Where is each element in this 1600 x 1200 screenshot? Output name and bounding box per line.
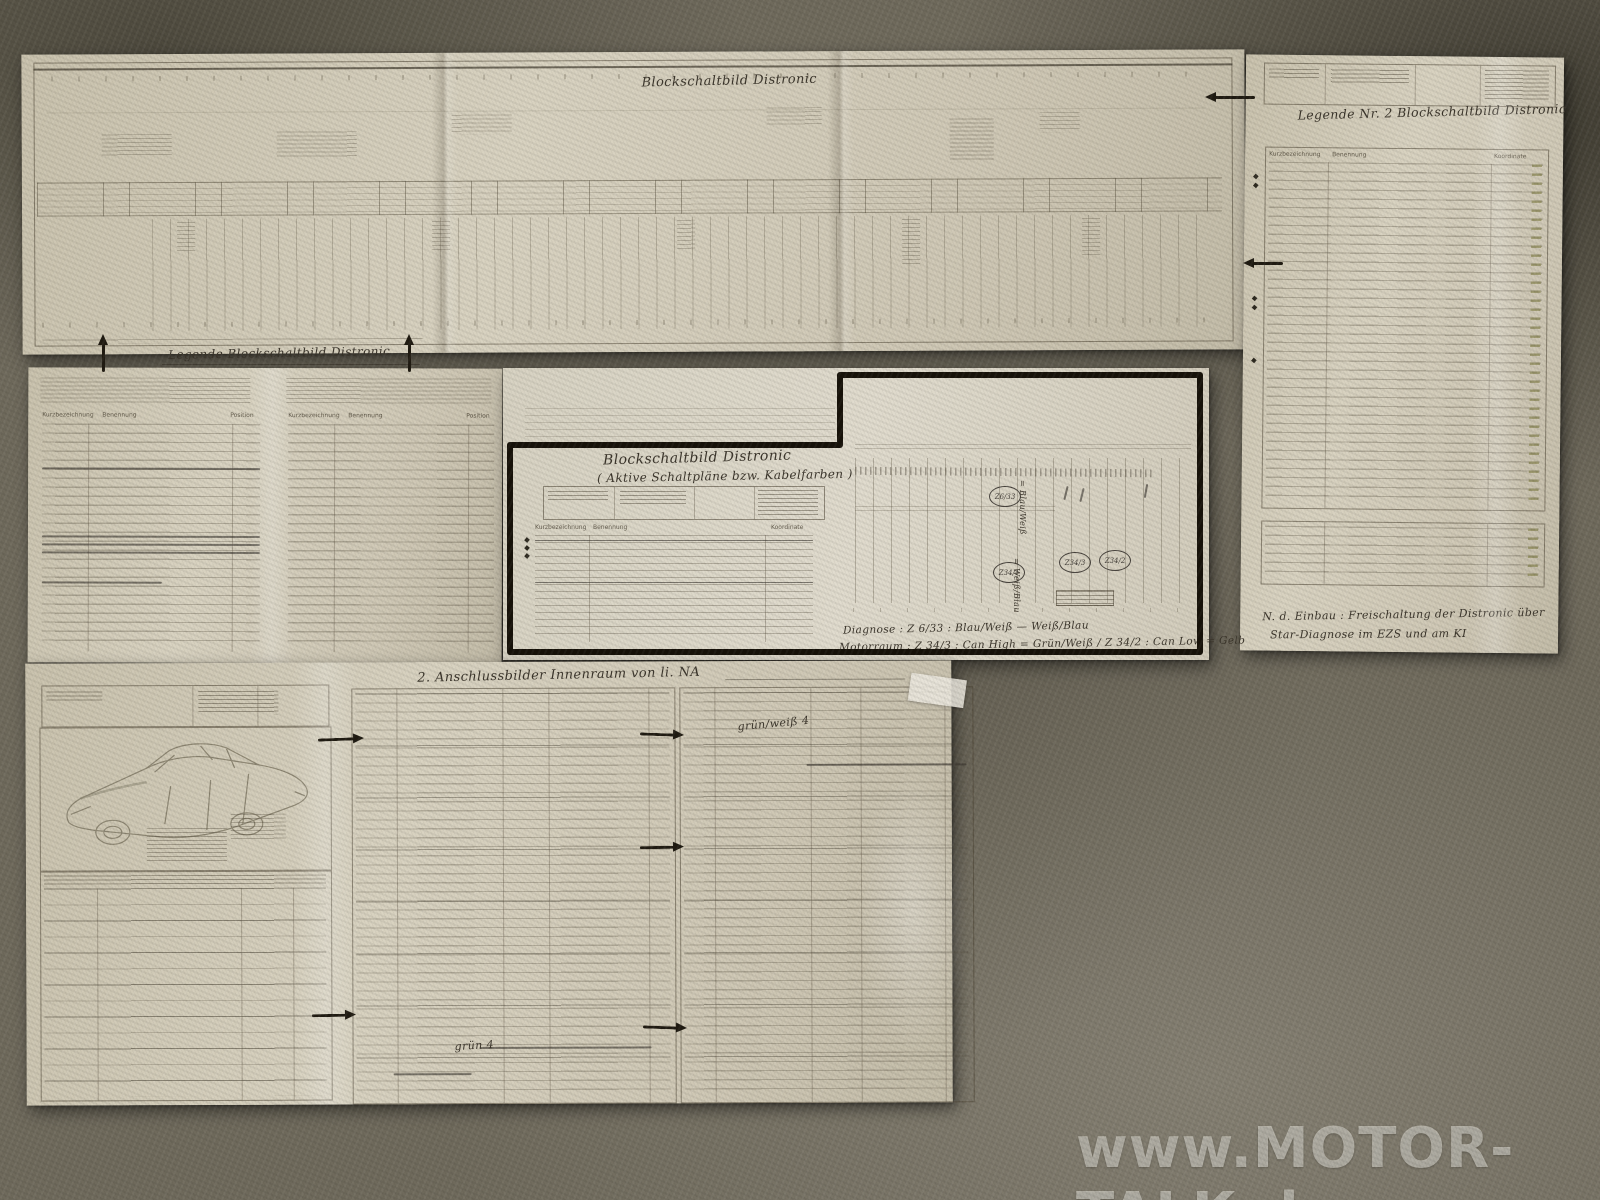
legend-rows	[1265, 162, 1543, 505]
header-smudge	[1485, 70, 1549, 103]
green-handwritten-checks	[1528, 528, 1539, 582]
header-smudge	[620, 491, 686, 505]
connector-box	[1056, 590, 1114, 606]
handwritten-circle-z633: Z6/33	[989, 486, 1021, 507]
sheet-right-legend: Legende Nr. 2 Blockschaltbild Distronic …	[1240, 54, 1564, 653]
handwritten-retrofit-note-2: Star-Diagnose im EZS und am KI	[1270, 627, 1467, 641]
col-header-kurzbezeichnung: Kurzbezeichnung	[1269, 151, 1320, 159]
pen-mark	[1252, 305, 1258, 311]
header-divider	[1325, 64, 1326, 104]
text-smudge	[950, 118, 994, 162]
col-divider	[589, 535, 590, 642]
connector-table-middle	[351, 687, 676, 1104]
pin-smudge	[677, 220, 695, 250]
legend-table-a: Kurzbezeichnung Benennung Position	[40, 411, 263, 652]
pen-mark	[1253, 183, 1259, 189]
pin-smudge	[177, 222, 195, 252]
watermark-text: www.MOTOR-TALK.de	[1076, 1116, 1600, 1200]
doc-header-box	[41, 685, 329, 728]
doc-meta-smudge	[40, 377, 250, 404]
handwritten-vertical-note-2: = Weiß/Blau	[1012, 558, 1021, 613]
text-smudge	[452, 115, 512, 135]
photo-of-wiring-diagrams: Blockschaltbild Distronic Legende Nr. 2 …	[0, 0, 1600, 1200]
pen-mark	[1251, 358, 1257, 364]
text-smudge	[102, 134, 172, 156]
table-rows	[683, 691, 968, 1096]
pen-mark	[524, 537, 530, 543]
handwritten-underline	[162, 364, 420, 365]
connector-table-right	[679, 686, 974, 1103]
sheet-framed-diagram: Blockschaltbild Distronic ( Aktive Schal…	[503, 368, 1209, 660]
handwritten-framed-title-1: Blockschaltbild Distronic	[603, 448, 792, 469]
legend-table-2	[1261, 521, 1546, 588]
col-header-kurzbezeichnung: Kurzbezeichnung	[288, 412, 339, 419]
pencil-highlight	[394, 1073, 472, 1075]
sheet-left-legend: Kurzbezeichnung Benennung Position Kurzb…	[28, 367, 503, 663]
schematic-block-row	[37, 177, 1222, 216]
handwritten-bottom-title: 2. Anschlussbilder Innenraum von li. NA	[417, 665, 700, 686]
hand-arrow-up-2	[408, 344, 411, 372]
pen-mark	[1252, 296, 1258, 302]
handwritten-trailing-line	[725, 679, 905, 681]
col-header-benennung: Benennung	[1332, 151, 1366, 158]
schematic-bottom-ticks	[853, 608, 1193, 612]
col-header-benennung: Benennung	[348, 412, 382, 419]
col-header-position: Position	[466, 413, 489, 420]
car-figure-box	[39, 727, 332, 872]
pin-smudge	[1082, 218, 1100, 258]
doc-meta-smudge	[286, 378, 491, 405]
doc-header-box	[543, 486, 825, 520]
sheet-bottom-connectors: 2. Anschlussbilder Innenraum von li. NA	[25, 660, 953, 1105]
handwritten-framed-title-2: ( Aktive Schaltpläne bzw. Kabelfarben )	[597, 467, 853, 485]
pin-smudge	[432, 221, 450, 251]
pencil-highlight	[42, 581, 162, 583]
header-smudge	[46, 691, 102, 701]
col-divider	[765, 535, 766, 642]
header-divider	[754, 487, 755, 519]
pen-mark	[1253, 174, 1259, 180]
hand-arrow-up-1	[102, 344, 105, 372]
header-divider	[614, 487, 615, 519]
sheet-top-schematic: Blockschaltbild Distronic	[21, 49, 1245, 354]
table-rows	[535, 535, 813, 639]
pen-mark	[524, 545, 530, 551]
legend-table-b: Kurzbezeichnung Benennung Position	[286, 412, 497, 653]
header-smudge	[1269, 69, 1319, 80]
hand-arrow-right-3	[640, 846, 674, 850]
header-smudge	[198, 691, 278, 715]
header-smudge	[1331, 69, 1409, 84]
header-divider	[1415, 65, 1416, 105]
col-header-kurzbezeichnung: Kurzbezeichnung	[535, 524, 586, 531]
col-header-koordinate: Koordinate	[1494, 153, 1526, 160]
connector-table-left	[40, 871, 333, 1102]
carryover-rows	[525, 408, 835, 438]
header-smudge	[758, 490, 818, 516]
handwritten-vertical-note-1: = Blau/Weiß	[1018, 480, 1027, 535]
callout-smudge	[147, 828, 227, 862]
pen-mark	[524, 553, 530, 559]
handwritten-circle-z342: Z34/2	[1099, 550, 1131, 571]
col-header-kurzbezeichnung: Kurzbezeichnung	[42, 411, 93, 418]
header-divider	[1480, 66, 1481, 106]
color-code-table: Kurzbezeichnung Benennung Koordinate	[533, 524, 815, 642]
header-divider	[694, 487, 695, 519]
doc-header-box	[1264, 63, 1556, 108]
pin-label-smudge	[855, 444, 1191, 451]
text-smudge	[1040, 112, 1080, 132]
header-divider	[192, 686, 193, 726]
header-smudge	[548, 491, 608, 501]
table-rows	[44, 888, 327, 1097]
handwritten-left-legend-title: Legende Blockschaltbild Distronic	[168, 344, 390, 362]
handwritten-wire-note-gruen: grün 4	[454, 1038, 494, 1053]
legend-rows	[1265, 526, 1540, 583]
col-header-benennung: Benennung	[102, 412, 136, 419]
hand-arrow-left-1	[1215, 96, 1255, 99]
hand-arrow-right-5	[312, 1014, 346, 1018]
handwritten-diagnose-note-2: Motorraum : Z 34/3 : Can High = Grün/Wei…	[839, 634, 1246, 653]
hand-arrow-left-2	[1253, 262, 1283, 265]
table-header-smudge	[44, 875, 326, 885]
text-smudge	[277, 131, 357, 157]
callout-smudge	[231, 814, 286, 840]
text-smudge	[767, 107, 822, 125]
pin-smudge	[902, 219, 920, 265]
legend-rows	[288, 424, 495, 649]
handwritten-retrofit-note-1: N. d. Einbau : Freischaltung der Distron…	[1262, 606, 1545, 623]
col-header-benennung: Benennung	[593, 524, 627, 531]
handwritten-diagnose-note-1: Diagnose : Z 6/33 : Blau/Weiß — Weiß/Bla…	[843, 619, 1089, 636]
handwritten-circle-z343: Z34/3	[1059, 552, 1091, 573]
table-rows	[355, 692, 670, 1097]
col-header-koordinate: Koordinate	[771, 524, 803, 531]
col-header-position: Position	[230, 412, 253, 419]
legend-table: Kurzbezeichnung Benennung Koordinate	[1261, 147, 1549, 512]
